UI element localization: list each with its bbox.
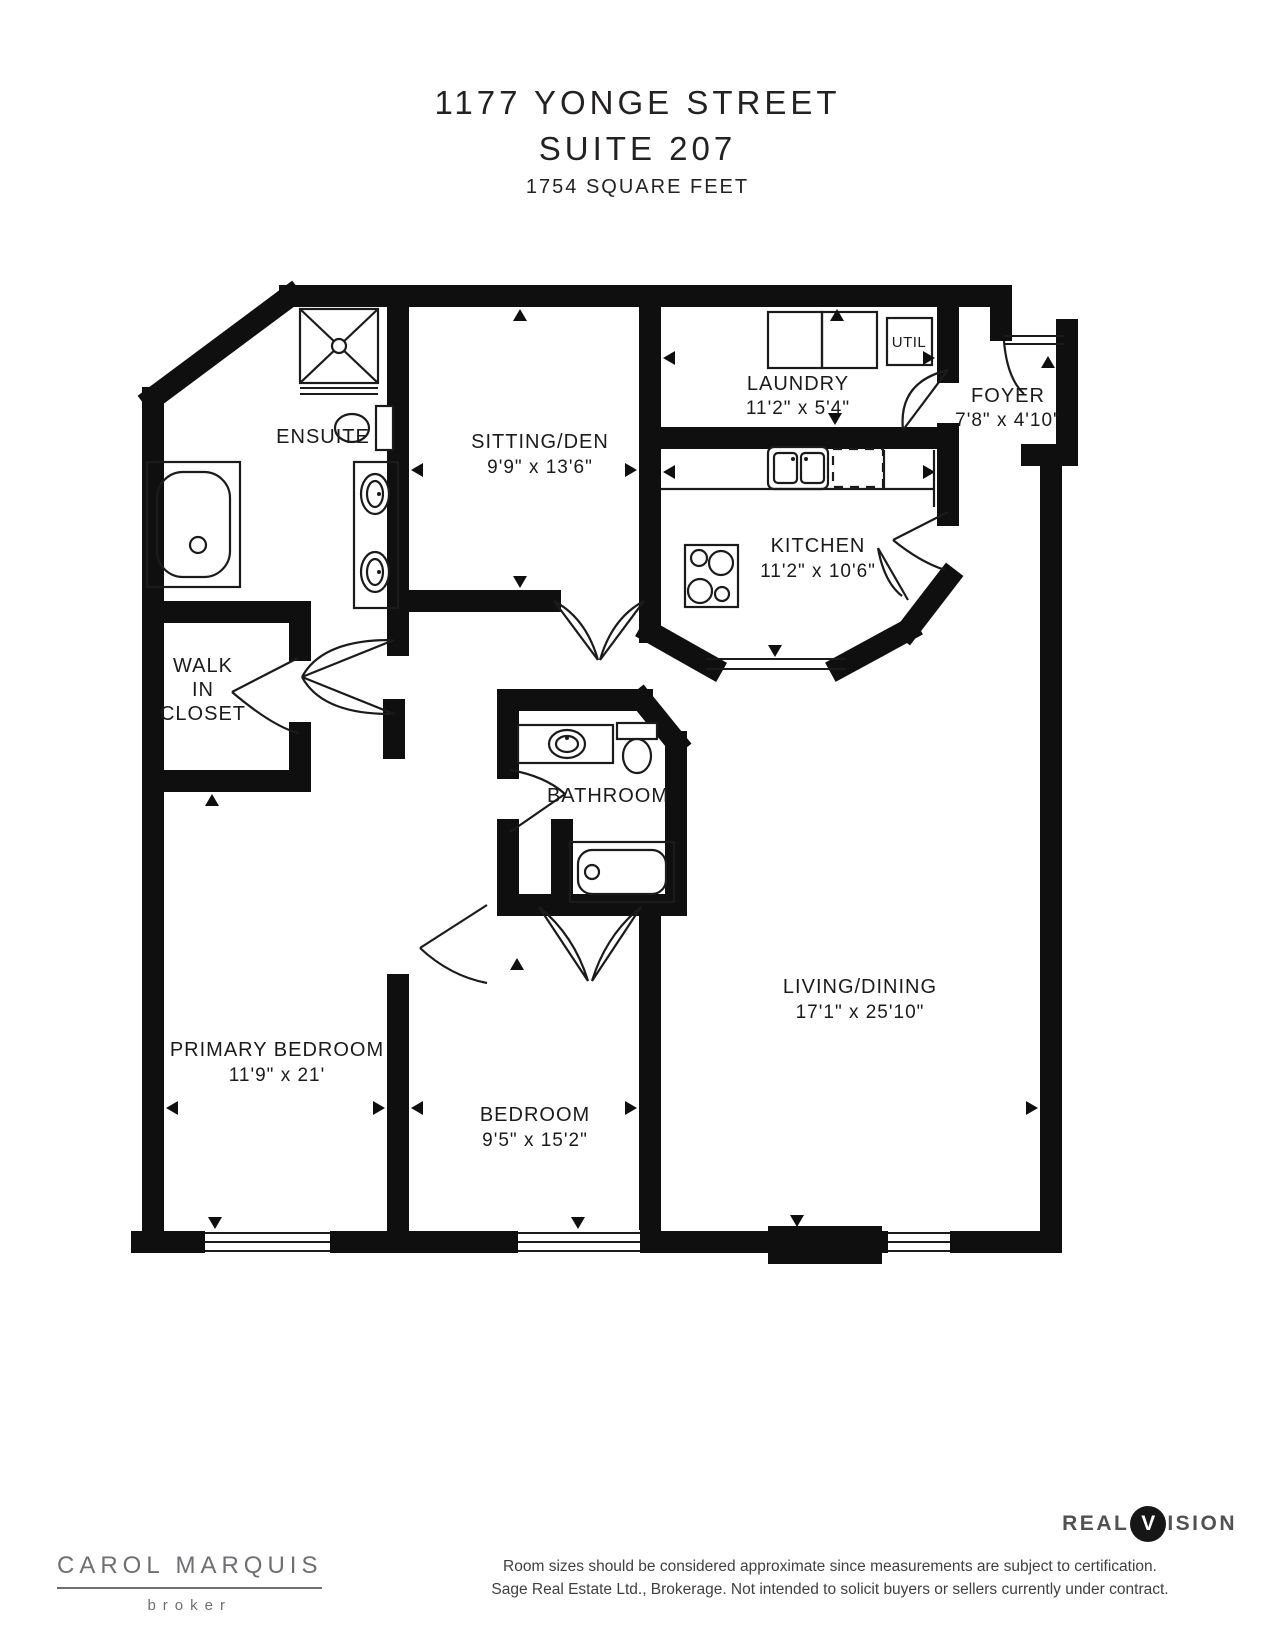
- walk-in-closet-label-line1: WALK: [173, 655, 233, 677]
- bedroom-closet-doors: [539, 907, 641, 981]
- shower: [300, 309, 378, 394]
- page-title-area: 1754 SQUARE FEET: [0, 176, 1275, 199]
- bathroom-toilet: [617, 723, 657, 773]
- living-dining-dims: 17'1" x 25'10": [796, 1002, 925, 1023]
- disclaimer: Room sizes should be considered approxim…: [420, 1556, 1240, 1601]
- laundry-dims: 11'2" x 5'4": [746, 398, 850, 419]
- primary-bedroom-dims: 11'9" x 21': [229, 1065, 325, 1086]
- sitting-den-label: SITTING/DEN: [471, 431, 609, 453]
- washer-dryer: [768, 312, 877, 368]
- walk-in-closet-label-line3: CLOSET: [160, 703, 246, 725]
- page-title-address: 1177 YONGE STREET: [0, 84, 1275, 122]
- kitchen-bay-window: [706, 659, 846, 669]
- realvision-logo: REAL V ISION: [1062, 1506, 1237, 1542]
- bedroom-label: BEDROOM: [480, 1104, 590, 1126]
- kitchen-sink: [768, 447, 828, 489]
- primary-hall-double-doors: [302, 640, 394, 714]
- kitchen-dims: 11'2" x 10'6": [760, 561, 876, 582]
- page-title-suite: SUITE 207: [0, 130, 1275, 168]
- floorplan-page: 1177 YONGE STREET SUITE 207 1754 SQUARE …: [0, 0, 1275, 1650]
- bathroom-label: BATHROOM: [547, 785, 669, 807]
- agent-title: broker: [57, 1597, 322, 1614]
- bedroom-door: [420, 905, 487, 983]
- disclaimer-line2: Sage Real Estate Ltd., Brokerage. Not in…: [420, 1579, 1240, 1602]
- bathroom-bathtub: [570, 842, 674, 902]
- living-bottom-block: [768, 1226, 882, 1264]
- living-dining-label: LIVING/DINING: [783, 976, 937, 998]
- foyer-door: [903, 370, 948, 430]
- sitting-den-dims: 9'9" x 13'6": [487, 457, 593, 478]
- floorplan-drawing: ENSUITE SITTING/DEN 9'9" x 13'6" LAUNDRY…: [0, 0, 1275, 1650]
- logo-text-right: ISION: [1167, 1512, 1237, 1536]
- logo-v-circle-icon: V: [1130, 1506, 1166, 1542]
- sitting-den-double-doors: [554, 601, 644, 660]
- foyer-dims: 7'8" x 4'10": [955, 410, 1061, 431]
- bedroom-dims: 9'5" x 15'2": [482, 1130, 588, 1151]
- disclaimer-line1: Room sizes should be considered approxim…: [420, 1556, 1240, 1579]
- foyer-label: FOYER: [971, 385, 1045, 407]
- agent-name: CAROL MARQUIS: [57, 1552, 322, 1589]
- walk-in-closet-label-line2: IN: [192, 679, 214, 701]
- kitchen-label: KITCHEN: [771, 535, 866, 557]
- ensuite-label: ENSUITE: [276, 426, 370, 448]
- living-dining-window: [888, 1230, 950, 1254]
- entry-door-sidelite: [1004, 336, 1064, 344]
- logo-text-left: REAL: [1062, 1512, 1129, 1536]
- primary-bedroom-window: [205, 1230, 330, 1254]
- bathroom-vanity: [518, 725, 613, 763]
- util-label: UTIL: [892, 334, 927, 351]
- bedroom-window: [518, 1230, 640, 1254]
- agent-block: CAROL MARQUIS broker: [57, 1552, 322, 1614]
- primary-bedroom-label: PRIMARY BEDROOM: [170, 1039, 384, 1061]
- stove: [685, 545, 738, 607]
- laundry-label: LAUNDRY: [747, 373, 849, 395]
